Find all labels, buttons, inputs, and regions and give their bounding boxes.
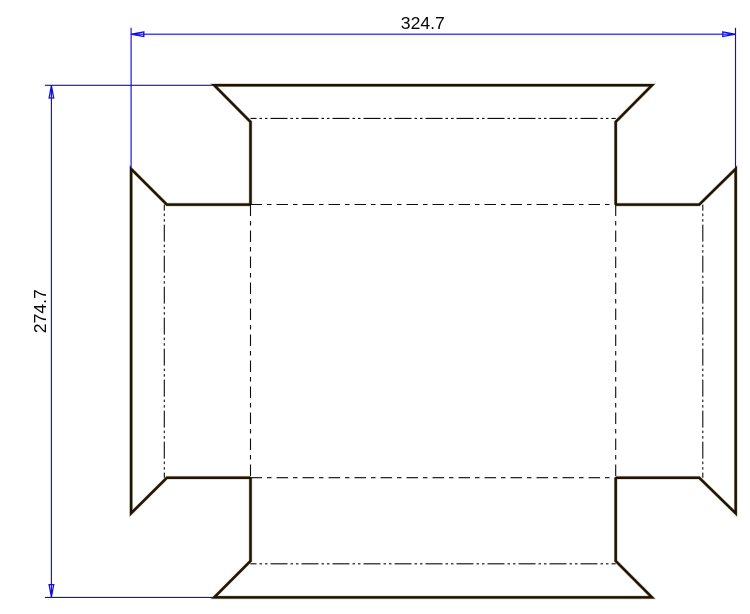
svg-text:274.7: 274.7 <box>30 289 50 333</box>
svg-text:324.7: 324.7 <box>401 13 445 33</box>
